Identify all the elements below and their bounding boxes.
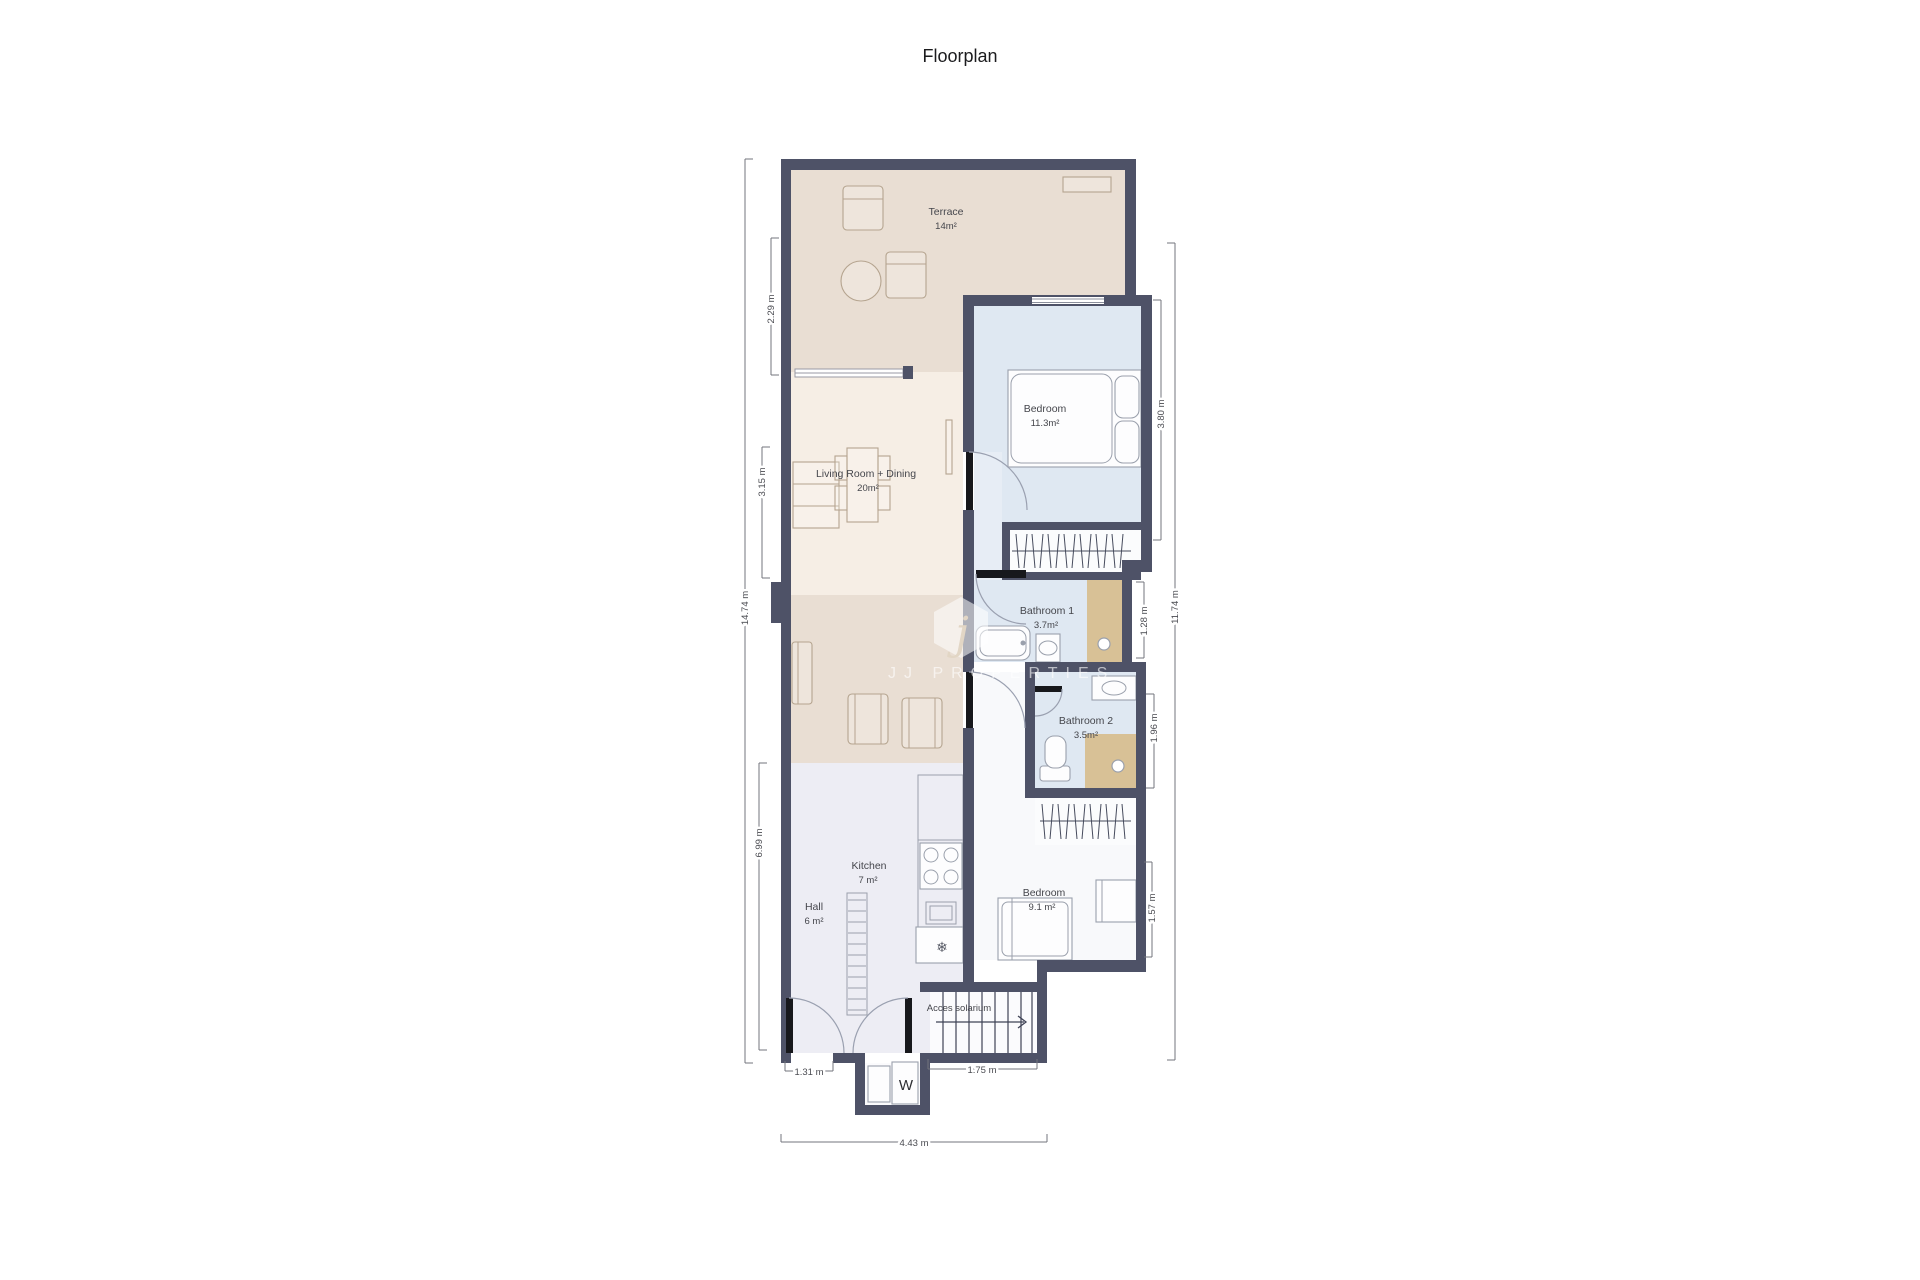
wall-wardrobe1-top <box>1002 522 1141 530</box>
armchair <box>902 698 942 748</box>
wall-step <box>1122 560 1152 572</box>
dim-living-depth: 3.15 m <box>757 467 768 496</box>
wall-stairs-top <box>920 982 1040 992</box>
dim-bathroom2-depth: 1.96 m <box>1149 713 1160 742</box>
dim-bottom-total: 4.43 m <box>899 1138 928 1149</box>
vestibule-floor <box>974 452 1002 580</box>
bathroom1-door-leaf <box>976 570 1026 578</box>
dim-entrance-width: 1.31 m <box>794 1067 823 1078</box>
laundry-sink <box>868 1066 890 1102</box>
wall-bathroom2-bottom <box>1025 788 1136 798</box>
hall-area: 6 m² <box>805 916 824 927</box>
bathroom2-door-leaf <box>1035 686 1062 692</box>
dining-chair <box>835 486 847 510</box>
dim-line-right-total <box>1167 243 1175 1060</box>
wall-bedroom2-bottom <box>1037 960 1146 972</box>
living-room-area: 20m² <box>857 483 879 494</box>
terrace-planter <box>1063 177 1111 192</box>
bedroom1-window <box>1032 297 1104 304</box>
bathroom1-label: Bathroom 1 <box>1020 605 1074 617</box>
hall-label: Hall <box>805 901 823 913</box>
entrance-door-leaf <box>786 998 793 1053</box>
bedroom2-area: 9.1 m² <box>1029 902 1056 913</box>
wall-spine-lower <box>963 728 974 982</box>
bedroom1-furniture <box>1008 370 1141 467</box>
dim-hall-depth: 6.99 m <box>754 828 765 857</box>
wall-terrace-right <box>1125 159 1136 306</box>
laundry-door-leaf <box>905 998 912 1053</box>
dim-bathroom1-depth: 1.28 m <box>1139 606 1150 635</box>
wall-top <box>781 159 1136 170</box>
bed-pillow <box>1115 376 1139 418</box>
bathroom2-label: Bathroom 2 <box>1059 715 1113 727</box>
dim-bedroom1-depth: 3.80 m <box>1156 399 1167 428</box>
page-title: Floorplan <box>922 46 997 66</box>
bathroom1-area: 3.7m² <box>1034 620 1058 631</box>
dim-left-total: 14.74 m <box>740 591 751 625</box>
wall-bottom-right <box>922 1053 1047 1063</box>
watermark-brand-text: JJ PROPERTIES <box>888 665 1115 682</box>
tv-unit <box>946 420 952 474</box>
wall-laundry-bottom <box>855 1105 930 1115</box>
dim-bedroom2-depth: 1.57 m <box>1147 893 1158 922</box>
washer-label: W <box>899 1077 914 1094</box>
freezer-icon: ❄ <box>936 939 948 955</box>
toilet-bowl <box>1045 736 1066 768</box>
pedestal-sink <box>1036 634 1060 662</box>
wall-left-jog <box>771 582 781 623</box>
sofa <box>792 642 812 704</box>
terrace-label: Terrace <box>928 206 963 218</box>
shower-drain <box>1112 760 1124 772</box>
bedroom1-door-leaf <box>966 452 973 510</box>
dim-terrace-depth: 2.29 m <box>766 294 777 323</box>
wall-bedroom1-right <box>1141 295 1152 560</box>
shower-drain <box>1098 638 1110 650</box>
bathroom2-area: 3.5m² <box>1074 730 1098 741</box>
bathroom2-shower-tile <box>1085 734 1136 788</box>
living-room-label: Living Room + Dining <box>816 468 916 480</box>
wall-right-lower <box>1136 672 1146 972</box>
terrace-chair <box>843 186 883 230</box>
dining-chair <box>878 486 890 510</box>
floorplan-drawing: Floorplan <box>0 0 1920 1280</box>
bathtub-faucet <box>1021 641 1026 646</box>
bedroom1-label: Bedroom <box>1024 403 1067 415</box>
kitchen-area: 7 m² <box>859 875 878 886</box>
terrace-area: 14m² <box>935 221 957 232</box>
armchair <box>848 694 888 744</box>
kitchen-label: Kitchen <box>851 860 886 872</box>
wall-left <box>781 159 791 1063</box>
terrace-round-table <box>841 261 881 301</box>
solarium-access-label: Acces solarium <box>927 1003 991 1014</box>
bedroom2-label: Bedroom <box>1023 887 1066 899</box>
wall-spine-upper <box>963 295 974 452</box>
terrace-chair <box>886 252 926 298</box>
wall-step <box>1122 662 1146 672</box>
bed-pillow <box>1115 421 1139 463</box>
floorplan-page: Floorplan <box>0 0 1920 1280</box>
wall-bathroom1-right <box>1122 572 1132 672</box>
dim-line-hall-depth <box>759 763 767 1050</box>
dim-stairs-width: 1.75 m <box>967 1065 996 1076</box>
wall-bathroom2-left <box>1025 672 1035 798</box>
bedroom1-area: 11.3m² <box>1031 418 1060 429</box>
dim-line-living-depth <box>762 447 770 578</box>
dim-right-total: 11.74 m <box>1170 590 1181 624</box>
glazing-jamb <box>903 366 913 379</box>
